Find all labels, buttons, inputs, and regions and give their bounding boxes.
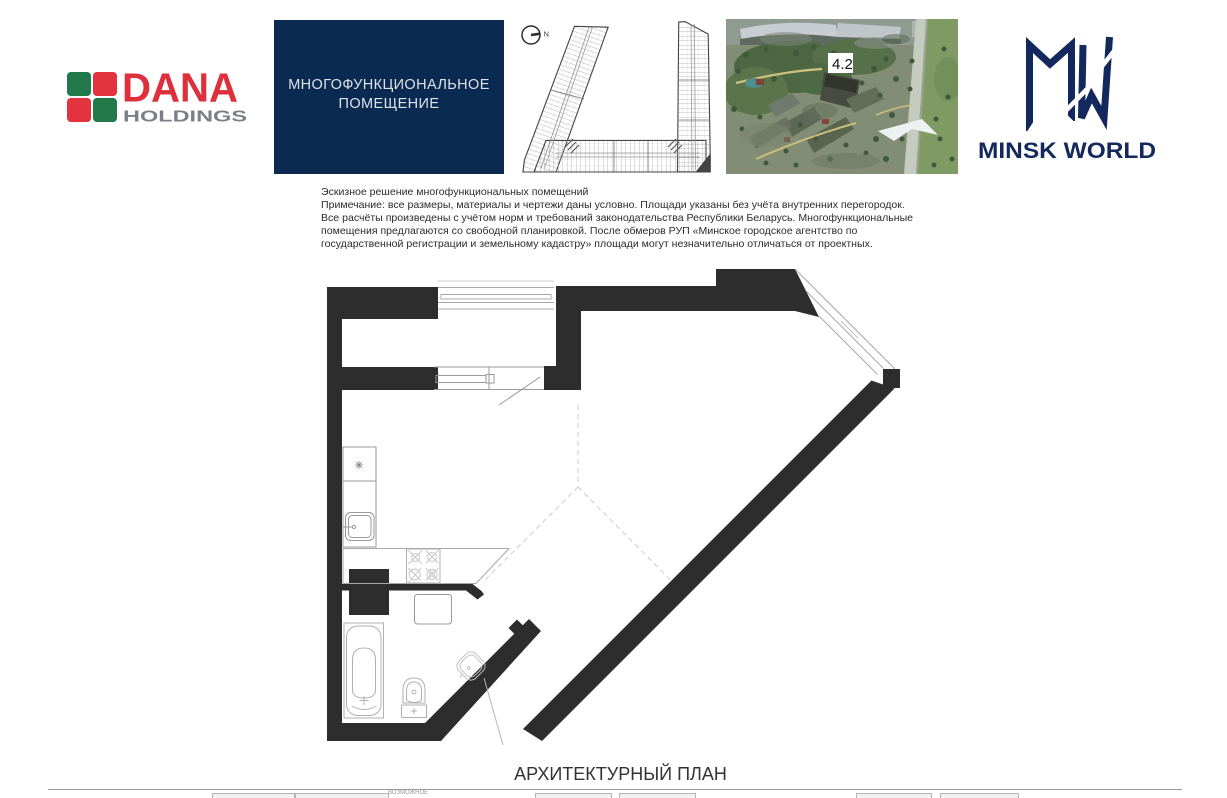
svg-text:HOLDINGS: HOLDINGS — [123, 109, 247, 126]
svg-text:MINSK WORLD: MINSK WORLD — [978, 138, 1156, 162]
svg-text:DANA: DANA — [122, 68, 238, 111]
svg-text:N: N — [544, 30, 549, 39]
svg-text:4.2: 4.2 — [832, 56, 853, 73]
